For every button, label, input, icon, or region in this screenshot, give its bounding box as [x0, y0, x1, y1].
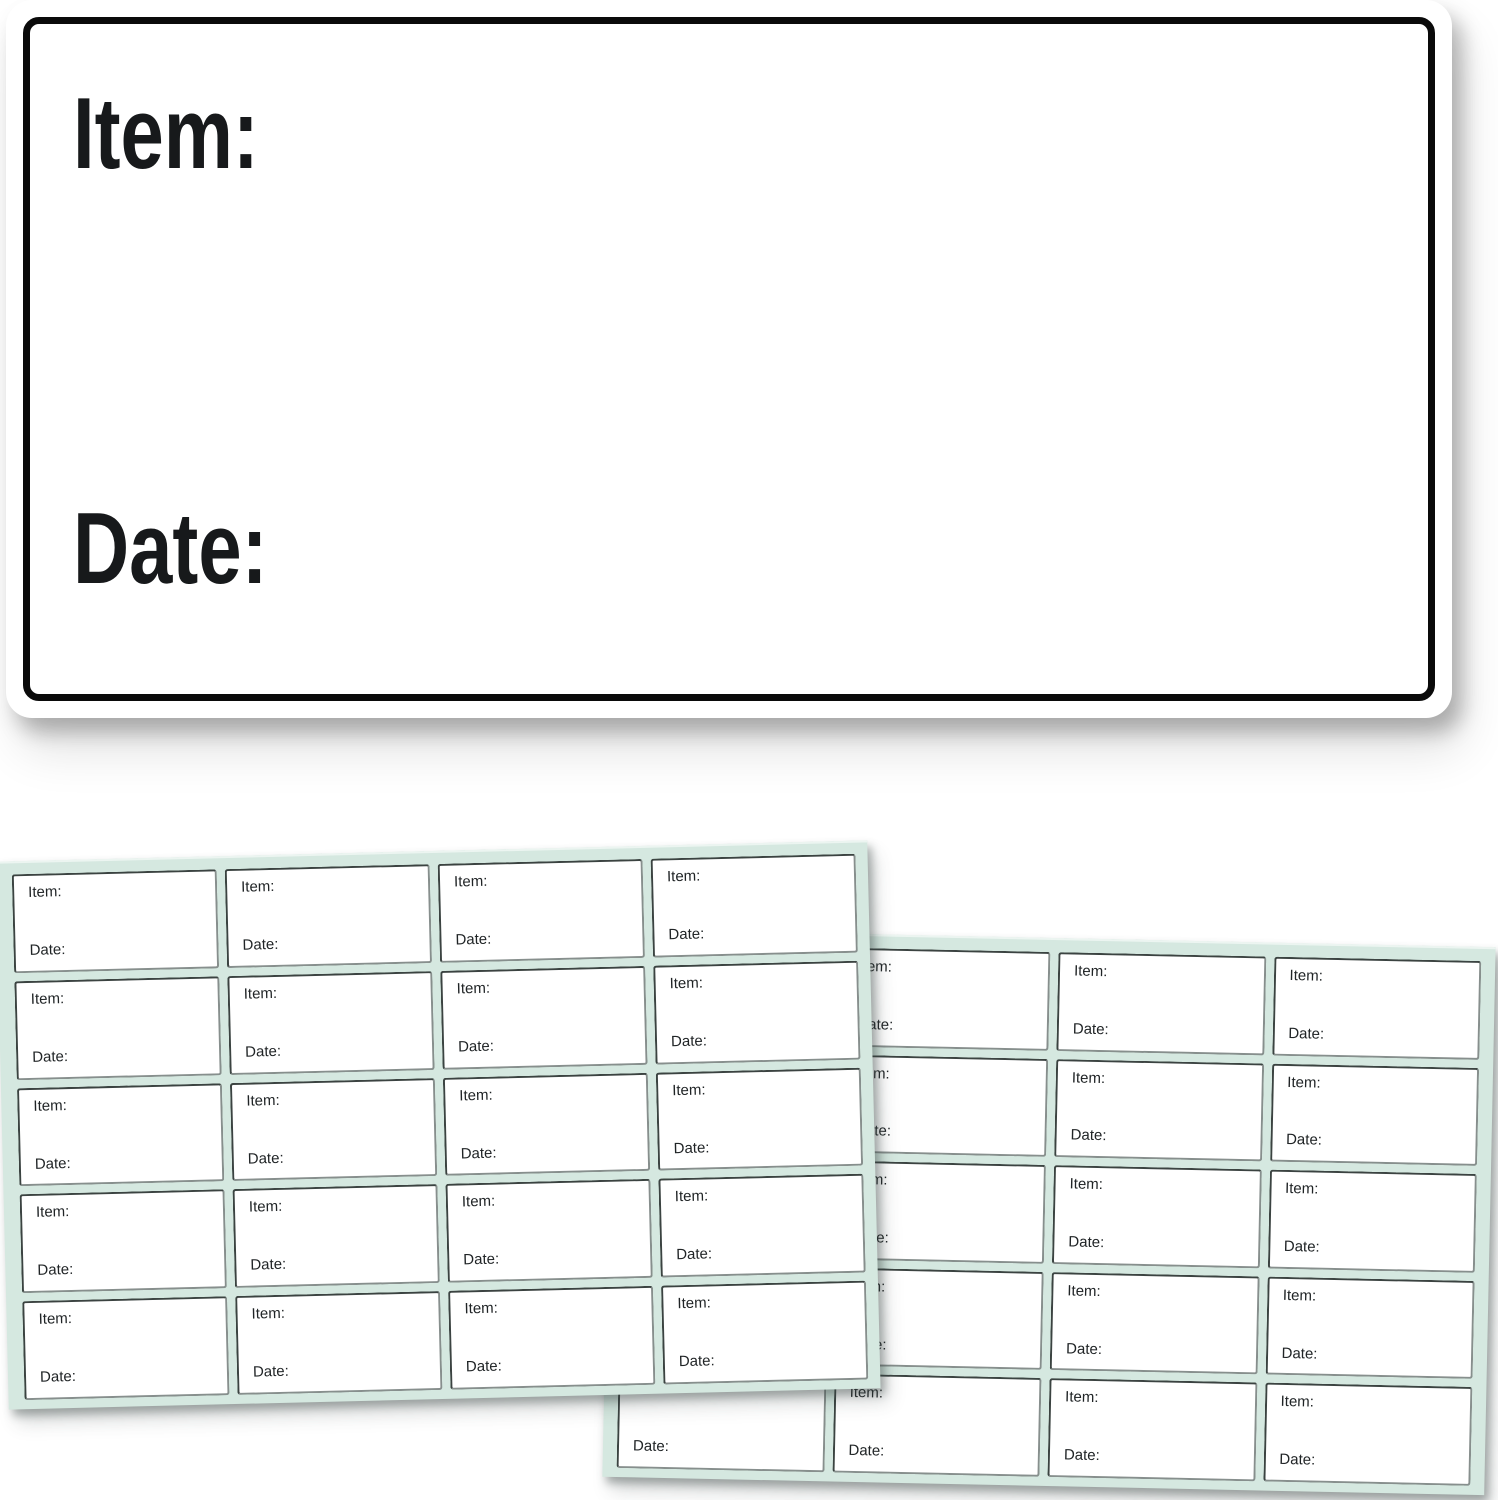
mini-label-left-r2-c4: Item:Date: [653, 960, 860, 1064]
mini-label-item-text: Item: [677, 1291, 858, 1314]
mini-label-item-text: Item: [856, 1065, 1040, 1088]
mini-label-date-text: Date: [248, 1146, 429, 1169]
mini-label-date-text: Date: [458, 1034, 639, 1057]
mini-label-item-text: Item: [1065, 1389, 1249, 1412]
mini-label-date-text: Date: [1279, 1451, 1463, 1474]
mini-label-item-text: Item: [33, 1093, 214, 1116]
mini-label-item-text: Item: [854, 1171, 1038, 1194]
mini-label-left-r5-c1: Item:Date: [22, 1296, 229, 1400]
mini-label-item-text: Item: [1072, 1069, 1256, 1092]
mini-label-item-text: Item: [456, 976, 637, 999]
mini-label-date-text: Date: [253, 1359, 434, 1382]
mini-label-date-text: Date: [1073, 1020, 1257, 1043]
label-sheet-left: Item:Date:Item:Date:Item:Date:Item:Date:… [0, 840, 881, 1409]
mini-label-right-r4-c4: Item:Date: [1265, 1276, 1475, 1379]
mini-label-date-text: Date: [29, 938, 210, 961]
mini-label-date-text: Date: [32, 1044, 213, 1067]
mini-label-date-text: Date: [1286, 1131, 1470, 1154]
mini-label-left-r2-c1: Item:Date: [14, 976, 221, 1080]
mini-label-date-text: Date: [466, 1354, 647, 1377]
mini-label-item-text: Item: [669, 971, 850, 994]
mini-label-date-text: Date: [1281, 1345, 1465, 1368]
mini-label-item-text: Item: [852, 1278, 1036, 1301]
mini-label-date-text: Date: [460, 1141, 641, 1164]
mini-label-item-text: Item: [36, 1200, 217, 1223]
mini-label-item-text: Item: [1074, 962, 1258, 985]
mini-label-item-text: Item: [858, 958, 1042, 981]
mini-label-item-text: Item: [31, 986, 212, 1009]
mini-label-item-text: Item: [1289, 967, 1473, 990]
mini-label-item-text: Item: [454, 869, 635, 892]
mini-label-date-text: Date: [671, 1029, 852, 1052]
mini-label-right-r5-c3: Item:Date: [1047, 1378, 1257, 1481]
mini-label-right-r1-c2: Item:Date: [841, 948, 1051, 1051]
mini-label-left-r3-c2: Item:Date: [230, 1078, 437, 1182]
mini-label-item-text: Item: [1285, 1180, 1469, 1203]
mini-label-right-r3-c3: Item:Date: [1052, 1165, 1262, 1268]
mini-label-item-text: Item: [464, 1296, 645, 1319]
mini-label-item-text: Item: [244, 981, 425, 1004]
mini-label-item-text: Item: [675, 1184, 856, 1207]
mini-label-date-text: Date: [1070, 1127, 1254, 1150]
mini-label-date-text: Date: [673, 1135, 854, 1158]
mini-label-left-r4-c1: Item:Date: [20, 1190, 227, 1294]
mini-label-left-r5-c4: Item:Date: [661, 1281, 868, 1385]
mini-label-item-text: Item: [1069, 1176, 1253, 1199]
big-label-item-text: Item: [73, 84, 259, 185]
mini-label-left-r3-c1: Item:Date: [17, 1083, 224, 1187]
mini-label-item-text: Item: [246, 1088, 427, 1111]
mini-label-right-r5-c2: Item:Date: [832, 1374, 1042, 1477]
mini-label-right-r5-c4: Item:Date: [1263, 1383, 1473, 1486]
mini-label-left-r4-c4: Item:Date: [658, 1174, 865, 1278]
mini-label-date-text: Date: [242, 932, 423, 955]
mini-label-date-text: Date: [1064, 1447, 1248, 1470]
mini-label-item-text: Item: [28, 880, 209, 903]
mini-label-item-text: Item: [459, 1083, 640, 1106]
mini-label-date-text: Date: [37, 1258, 218, 1281]
mini-label-date-text: Date: [40, 1365, 221, 1388]
mini-label-item-text: Item: [249, 1195, 430, 1218]
mini-label-date-text: Date: [250, 1253, 431, 1276]
mini-label-left-r5-c3: Item:Date: [448, 1286, 655, 1390]
mini-label-right-r4-c3: Item:Date: [1050, 1272, 1260, 1375]
mini-label-right-r2-c3: Item:Date: [1054, 1059, 1264, 1162]
big-label-date-text: Date: [73, 499, 267, 600]
mini-label-left-r2-c2: Item:Date: [227, 971, 434, 1075]
mini-label-date-text: Date: [35, 1151, 216, 1174]
mini-label-right-r1-c3: Item:Date: [1056, 952, 1266, 1055]
mini-label-left-r5-c2: Item:Date: [235, 1291, 442, 1395]
big-label-sticker: Item: Date: [6, 0, 1452, 718]
mini-label-item-text: Item: [1067, 1282, 1251, 1305]
mini-label-date-text: Date: [668, 922, 849, 945]
mini-label-right-r1-c4: Item:Date: [1272, 957, 1482, 1060]
mini-label-date-text: Date: [853, 1229, 1037, 1252]
mini-label-item-text: Item: [241, 874, 422, 897]
mini-label-item-text: Item: [1280, 1393, 1464, 1416]
mini-label-date-text: Date: [676, 1242, 857, 1265]
mini-label-date-text: Date: [1288, 1025, 1472, 1048]
mini-label-item-text: Item: [251, 1301, 432, 1324]
mini-label-date-text: Date: [857, 1016, 1041, 1039]
mini-label-item-text: Item: [1283, 1287, 1467, 1310]
mini-label-left-r1-c3: Item:Date: [438, 859, 645, 963]
mini-label-item-text: Item: [672, 1077, 853, 1100]
mini-label-date-text: Date: [1066, 1340, 1250, 1363]
mini-label-date-text: Date: [855, 1122, 1039, 1145]
mini-label-left-r1-c2: Item:Date: [225, 864, 432, 968]
mini-label-left-r2-c3: Item:Date: [440, 966, 647, 1070]
mini-label-left-r3-c3: Item:Date: [443, 1072, 650, 1176]
mini-label-right-r3-c4: Item:Date: [1267, 1170, 1477, 1273]
mini-label-right-r2-c4: Item:Date: [1270, 1063, 1480, 1166]
mini-label-date-text: Date: [633, 1438, 817, 1461]
mini-label-left-r4-c2: Item:Date: [233, 1184, 440, 1288]
mini-label-date-text: Date: [455, 927, 636, 950]
mini-label-left-r4-c3: Item:Date: [445, 1179, 652, 1283]
mini-label-date-text: Date: [848, 1442, 1032, 1465]
mini-label-item-text: Item: [38, 1307, 219, 1330]
mini-label-item-text: Item: [667, 864, 848, 887]
mini-label-item-text: Item: [462, 1189, 643, 1212]
mini-label-date-text: Date: [1284, 1238, 1468, 1261]
mini-label-date-text: Date: [245, 1039, 426, 1062]
mini-label-date-text: Date: [463, 1247, 644, 1270]
mini-label-left-r3-c4: Item:Date: [656, 1067, 863, 1171]
mini-label-left-r1-c1: Item:Date: [12, 869, 219, 973]
mini-label-item-text: Item: [1287, 1074, 1471, 1097]
mini-label-left-r1-c4: Item:Date: [651, 854, 858, 958]
mini-label-date-text: Date: [1068, 1233, 1252, 1256]
mini-label-date-text: Date: [679, 1349, 860, 1372]
